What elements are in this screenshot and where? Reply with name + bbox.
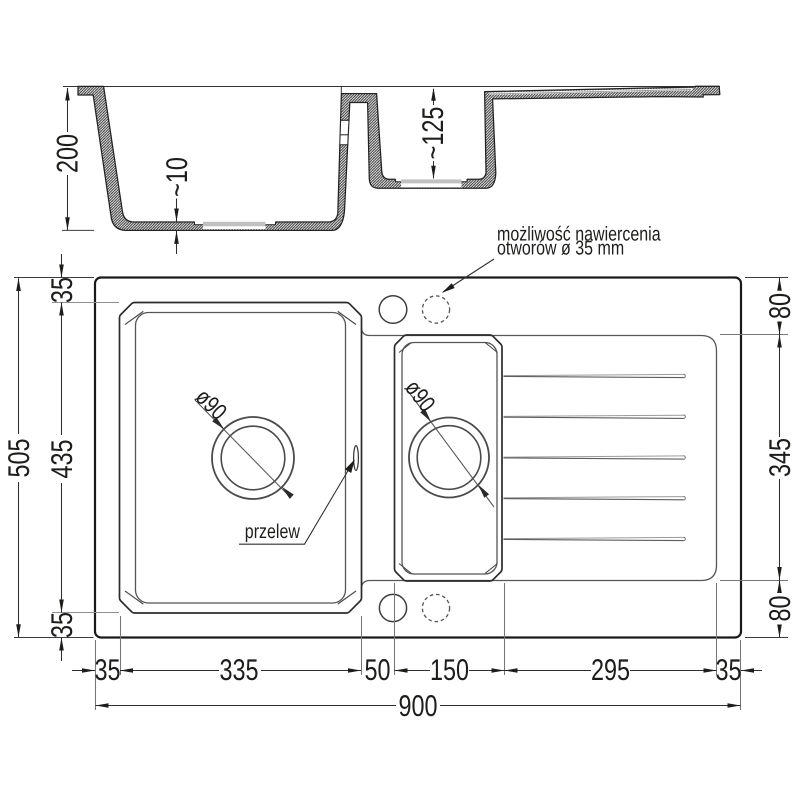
svg-text:80: 80 (764, 595, 797, 621)
svg-text:345: 345 (764, 438, 797, 477)
svg-text:200: 200 (52, 134, 85, 173)
svg-text:505: 505 (3, 438, 36, 477)
svg-text:295: 295 (591, 654, 630, 687)
svg-text:przelew: przelew (245, 521, 301, 543)
svg-text:~10: ~10 (161, 157, 194, 197)
svg-text:900: 900 (398, 690, 437, 723)
svg-text:otworów ø 35 mm: otworów ø 35 mm (497, 238, 624, 260)
svg-text:80: 80 (764, 293, 797, 319)
svg-text:35: 35 (46, 612, 79, 638)
svg-text:ø90: ø90 (191, 384, 232, 425)
svg-text:~125: ~125 (417, 107, 450, 160)
svg-text:335: 335 (219, 654, 258, 687)
svg-text:35: 35 (94, 654, 120, 687)
svg-text:ø90: ø90 (400, 375, 440, 417)
svg-text:35: 35 (715, 654, 741, 687)
svg-text:435: 435 (46, 439, 79, 478)
svg-text:50: 50 (364, 654, 390, 687)
svg-text:35: 35 (46, 277, 79, 303)
svg-text:150: 150 (430, 654, 469, 687)
